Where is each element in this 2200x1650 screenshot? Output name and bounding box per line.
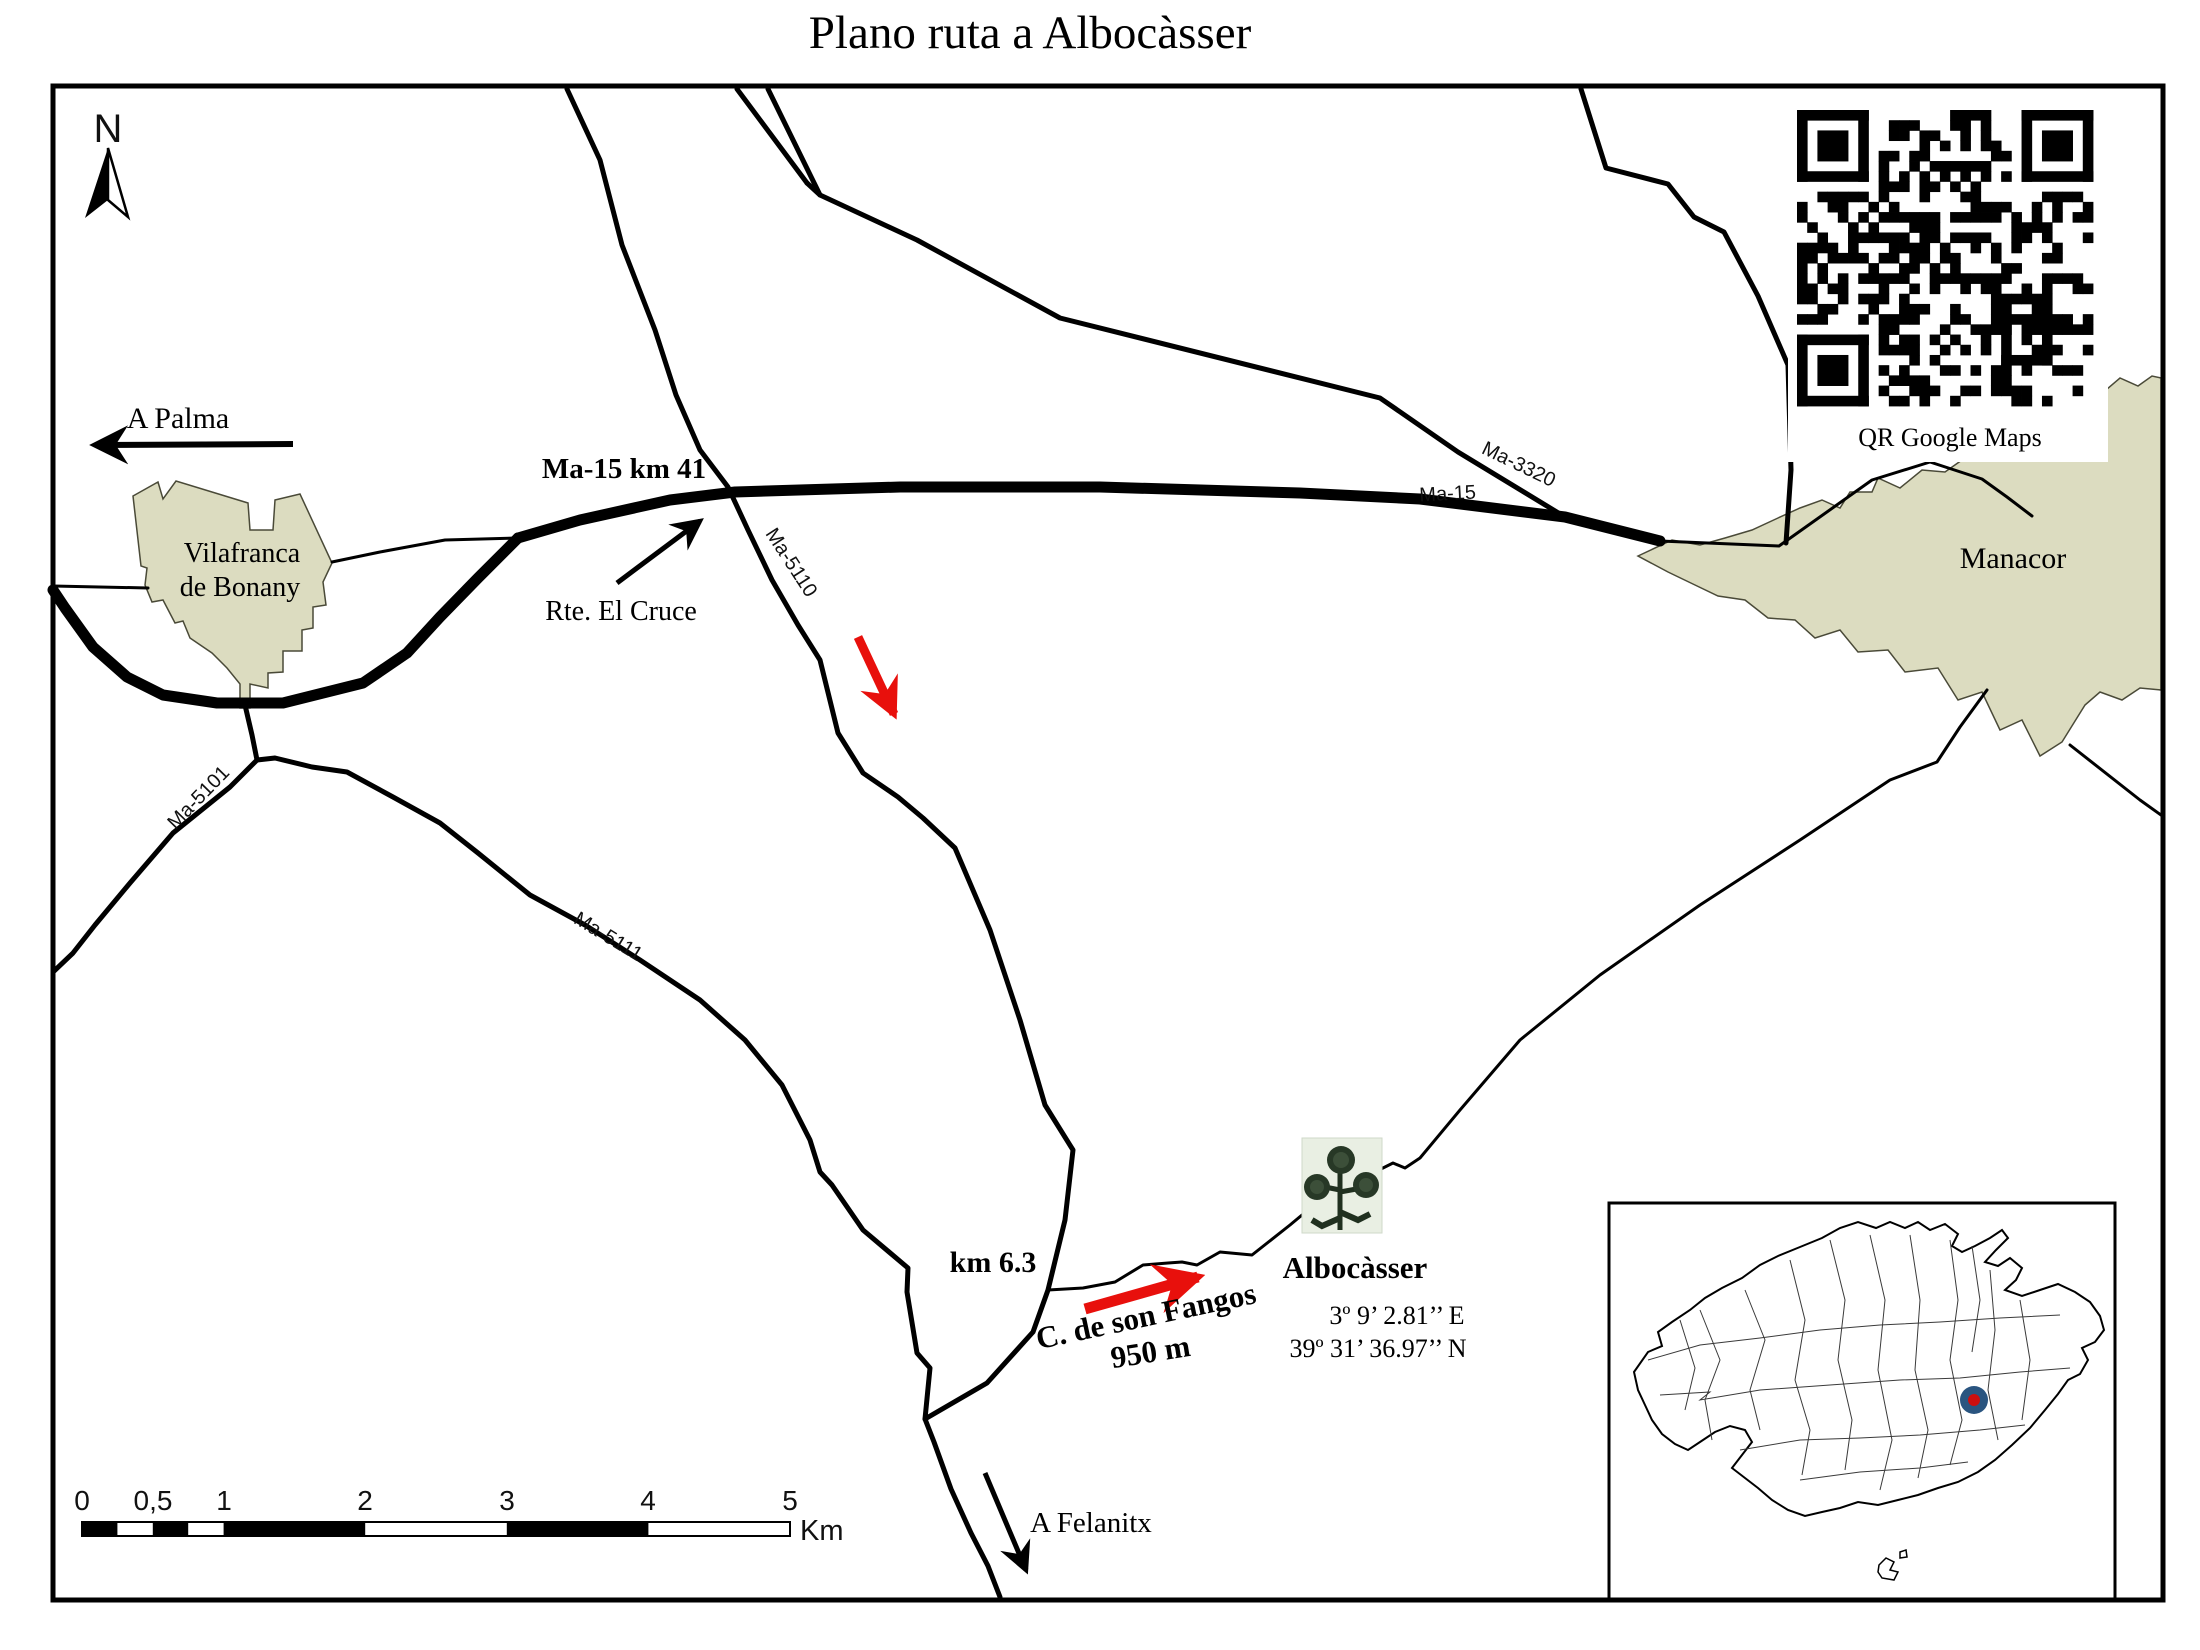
road-ma3320 — [807, 183, 1565, 517]
north-arrow-icon — [85, 148, 128, 218]
map-canvas: Plano ruta a Albocàsser N QR Google Maps — [0, 0, 2200, 1650]
scale-tick-0: 0 — [74, 1485, 90, 1516]
road-ma5101 — [53, 760, 257, 972]
label-road-ma15: Ma-15 — [1419, 482, 1477, 507]
scale-bar — [82, 1522, 790, 1536]
scale-unit: Km — [800, 1515, 844, 1547]
road-ma5111 — [257, 758, 930, 1419]
label-a-felanitx: A Felanitx — [1030, 1507, 1152, 1539]
albocasser-plant-icon — [1302, 1138, 1382, 1233]
scale-tick-5: 5 — [782, 1485, 798, 1516]
label-coord-e: 3º 9’ 2.81’’ E — [1329, 1301, 1464, 1330]
scale-tick-1: 1 — [216, 1485, 232, 1516]
road-manacor-albocasser — [1375, 690, 1987, 1172]
scale-tick-2: 2 — [357, 1485, 373, 1516]
label-km63: km 6.3 — [950, 1246, 1037, 1279]
scale-tick-05: 0,5 — [134, 1485, 173, 1516]
label-road-ma5110: Ma-5110 — [761, 524, 822, 601]
route-map-page: Plano ruta a Albocàsser N QR Google Maps — [0, 0, 2200, 1650]
label-vilafranca-line1: Vilafranca — [184, 538, 301, 569]
inset-map — [1609, 1203, 2115, 1600]
road-ma3320-branch1 — [737, 89, 807, 183]
north-label: N — [94, 107, 123, 151]
scale-tick-3: 3 — [499, 1485, 515, 1516]
palma-arrow-icon — [95, 444, 293, 445]
road-felanitx — [925, 1419, 1000, 1597]
page-title: Plano ruta a Albocàsser — [809, 7, 1252, 59]
route-arrow-1 — [858, 637, 894, 714]
scale-tick-4: 4 — [640, 1485, 656, 1516]
qr-caption: QR Google Maps — [1858, 423, 2041, 452]
road-se-exit — [2070, 745, 2161, 815]
rte-cruce-arrow-icon — [617, 521, 700, 583]
label-vilafranca-line2: de Bonany — [180, 572, 301, 603]
label-a-palma: A Palma — [127, 402, 230, 435]
label-road-ma5101: Ma-5101 — [163, 762, 234, 834]
road-vilafranca-west — [53, 586, 148, 588]
label-manacor: Manacor — [1960, 542, 2067, 575]
road-vilafranca-stem — [245, 705, 257, 760]
label-ma15-km41: Ma-15 km 41 — [542, 453, 706, 485]
label-rte-el-cruce: Rte. El Cruce — [545, 596, 697, 627]
road-ma5110 — [567, 89, 1073, 1419]
road-top-right — [1581, 89, 1791, 543]
label-road-ma3320: Ma-3320 — [1478, 437, 1559, 491]
inset-location-marker — [1960, 1386, 1988, 1414]
felanitx-arrow-icon — [985, 1473, 1026, 1570]
label-coord-n: 39º 31’ 36.97’’ N — [1289, 1334, 1466, 1363]
label-albocasser: Albocàsser — [1283, 1250, 1428, 1285]
label-road-ma5111: Ma-5111 — [570, 908, 646, 966]
road-ma15 — [518, 487, 1660, 541]
